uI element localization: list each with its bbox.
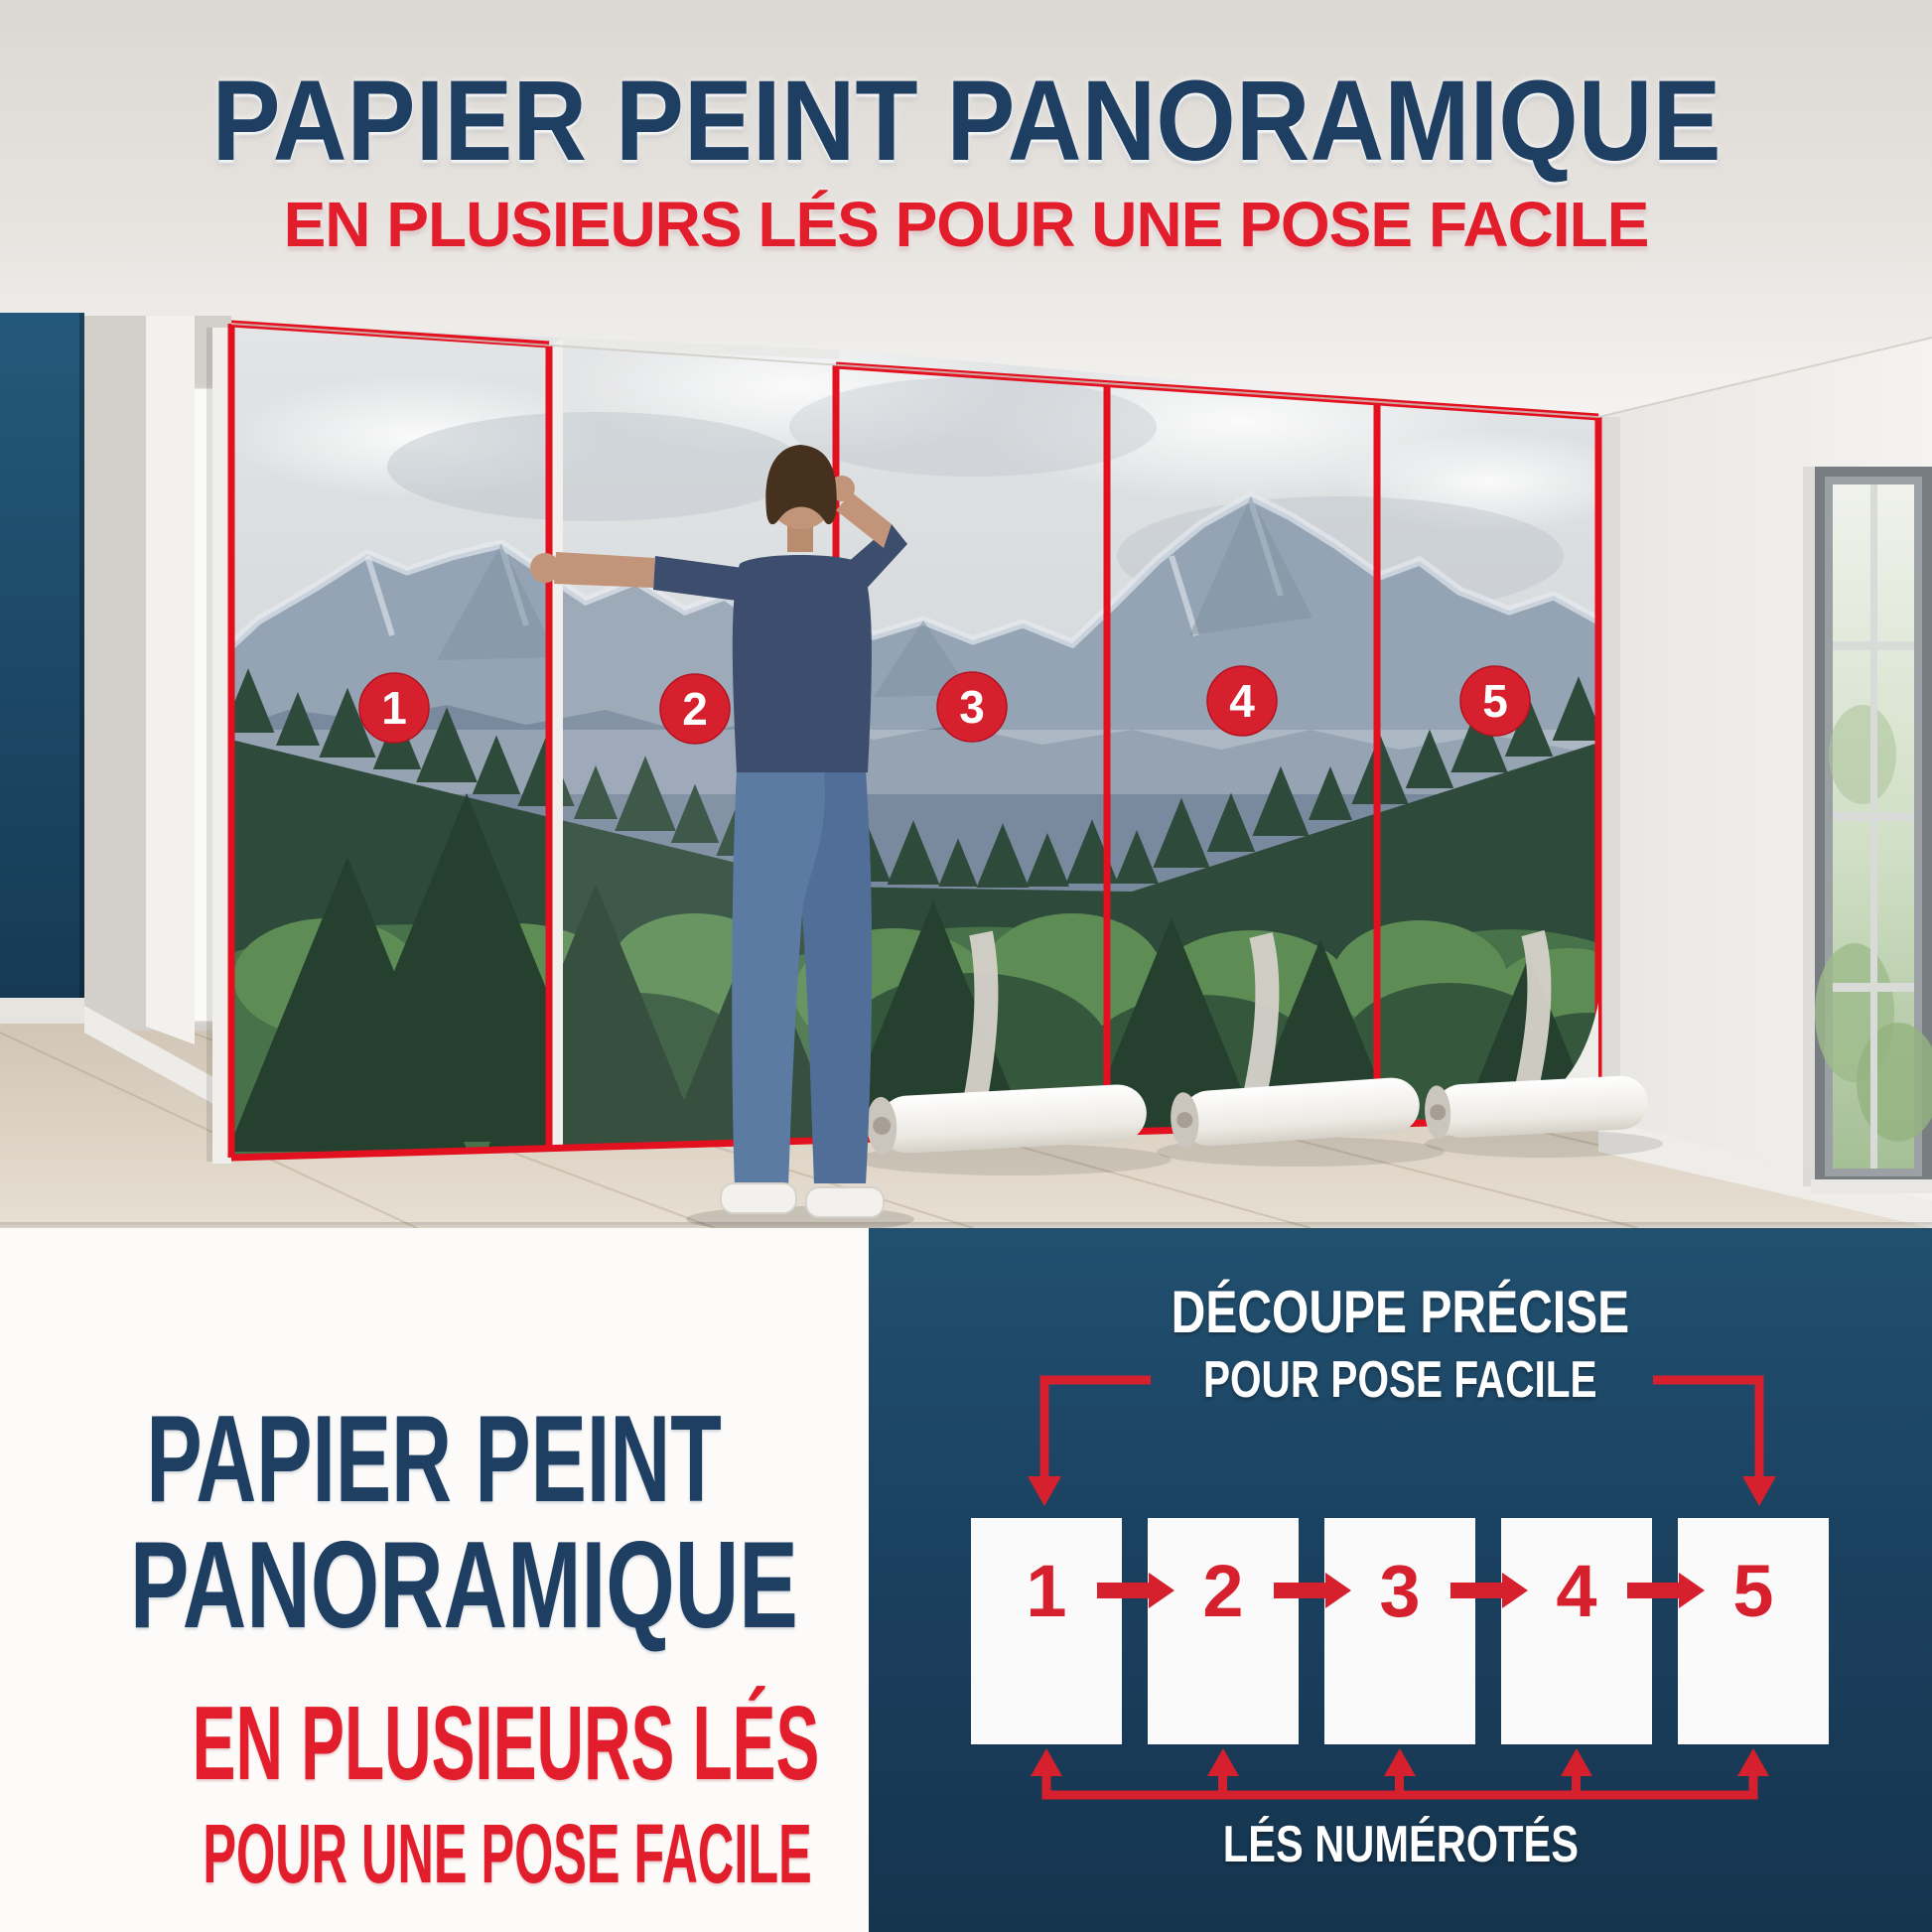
strip-number-3: 3 (1379, 1550, 1420, 1632)
bottom-left-panel: PAPIER PEINT PANORAMIQUE EN PLUSIEURS LÉ… (0, 1228, 869, 1932)
panel-number-4: 4 (1229, 675, 1255, 727)
panel-number-3: 3 (959, 681, 985, 733)
diagram-title-line2: POUR POSE FACILE (869, 1354, 1932, 1406)
window (1803, 467, 1932, 1193)
arrow-down-left-head-icon (1028, 1476, 1061, 1506)
panel-badge-5: 5 (1460, 666, 1530, 736)
panel-number-2: 2 (682, 683, 708, 735)
arrow-up-icon (1561, 1748, 1592, 1776)
diagram-caption: LÉS NUMÉROTÉS (869, 1819, 1932, 1870)
room-photo: 1 2 3 4 5 (0, 0, 1932, 1228)
diagram-panel: 1 2 3 4 5 (869, 1228, 1932, 1932)
strip-number-2: 2 (1202, 1550, 1243, 1632)
bl-subtitle-line1: EN PLUSIEURS LÉS (0, 1691, 869, 1796)
panel-number-1: 1 (381, 682, 407, 734)
arrow-up-icon (1384, 1748, 1416, 1776)
panel-badge-2: 2 (660, 674, 730, 744)
strip-number-4: 4 (1556, 1550, 1596, 1632)
panel-number-5: 5 (1482, 675, 1508, 727)
arrow-down-right-head-icon (1742, 1476, 1776, 1506)
accent-wall (0, 313, 84, 1024)
panel-badge-1: 1 (359, 673, 429, 743)
diagram-title-line1: DÉCOUPE PRÉCISE (869, 1283, 1932, 1342)
arrow-up-icon (1207, 1748, 1239, 1776)
wallpaper-rolls (854, 933, 1663, 1175)
panel-badge-3: 3 (937, 672, 1007, 742)
bl-title-line1: PAPIER PEINT (0, 1398, 869, 1521)
panel-badge-4: 4 (1207, 666, 1277, 736)
poster-root: 1 2 3 4 5 (0, 0, 1932, 1932)
strip-number-1: 1 (1026, 1550, 1066, 1632)
bl-subtitle-line2: POUR UNE POSE FACILE (0, 1812, 869, 1895)
strip-number-5: 5 (1732, 1550, 1773, 1632)
arrow-up-icon (1031, 1748, 1062, 1776)
arrow-up-icon (1737, 1748, 1769, 1776)
bl-title-line2: PANORAMIQUE (0, 1524, 869, 1647)
numbered-bracket (1031, 1748, 1769, 1797)
